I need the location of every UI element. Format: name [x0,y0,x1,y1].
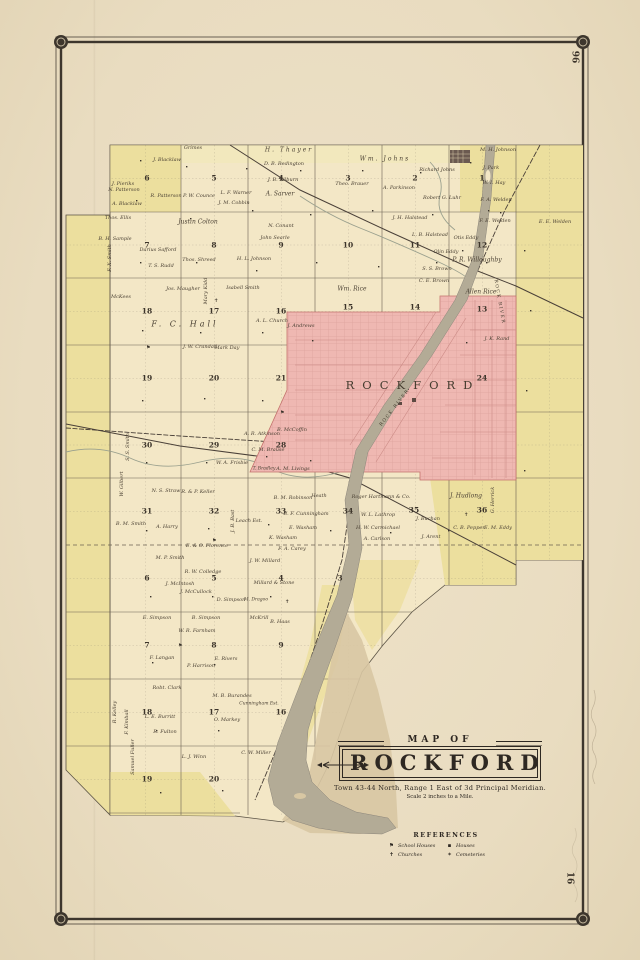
title-cartouche: MAP OF ROCKFORD Town 43-44 North, Range … [330,735,550,800]
village-plat [450,150,470,163]
reference-label: School Houses [398,843,435,849]
reference-label: Houses [456,843,475,849]
reference-item: ▪ Houses [446,841,504,850]
schoolhouse-icon: ⚑ [212,538,216,544]
church-icon: ✝ [388,852,395,858]
banner-flourish-left [317,760,343,770]
house-icon: ▪ [446,843,453,849]
map-title: ROCKFORD [343,752,537,774]
reference-item: ✝ Churches [388,850,446,859]
church-icon: ✝ [214,298,218,304]
schoolhouse-icon: ⚑ [146,345,150,351]
river-island [294,793,306,799]
atlas-page: ✝ ✝ ✝ ⚑ ⚑ ⚑ ⚑ J. PieriksJ. BlacklawA. Bl… [0,0,640,960]
city-area [250,296,516,480]
references-heading: REFERENCES [388,831,504,839]
references-items: ⚑ School Houses ✝ Churches ▪ Houses ✶ Ce… [388,841,504,859]
reference-item: ✶ Cemeteries [446,850,504,859]
church-icon: ✝ [285,599,289,605]
reference-item: ⚑ School Houses [388,841,446,850]
references-legend: REFERENCES ⚑ School Houses ✝ Churches ▪ … [388,831,504,859]
page-number-top: 96 [569,51,579,64]
river-island [486,170,491,182]
reference-label: Cemeteries [456,852,485,858]
map-scale: Scale 2 inches to a Mile. [330,794,550,800]
page-number-bottom: 16 [564,872,574,885]
schoolhouse-icon: ⚑ [280,410,284,416]
cartouche-kicker: MAP OF [330,735,550,745]
map-subtitle: Town 43-44 North, Range 1 East of 3d Pri… [330,784,550,792]
cartouche-banner: ROCKFORD [342,749,538,778]
church-icon: ✝ [464,512,468,518]
banner-flourish-right [343,760,369,770]
reference-label: Churches [398,852,422,858]
map-canvas: ✝ ✝ ✝ ⚑ ⚑ ⚑ ⚑ [0,0,640,960]
cemetery-icon: ✶ [446,852,453,858]
schoolhouse-icon: ⚑ [388,843,395,849]
margin-scribble [572,690,596,902]
schoolhouse-icon: ⚑ [178,643,182,649]
